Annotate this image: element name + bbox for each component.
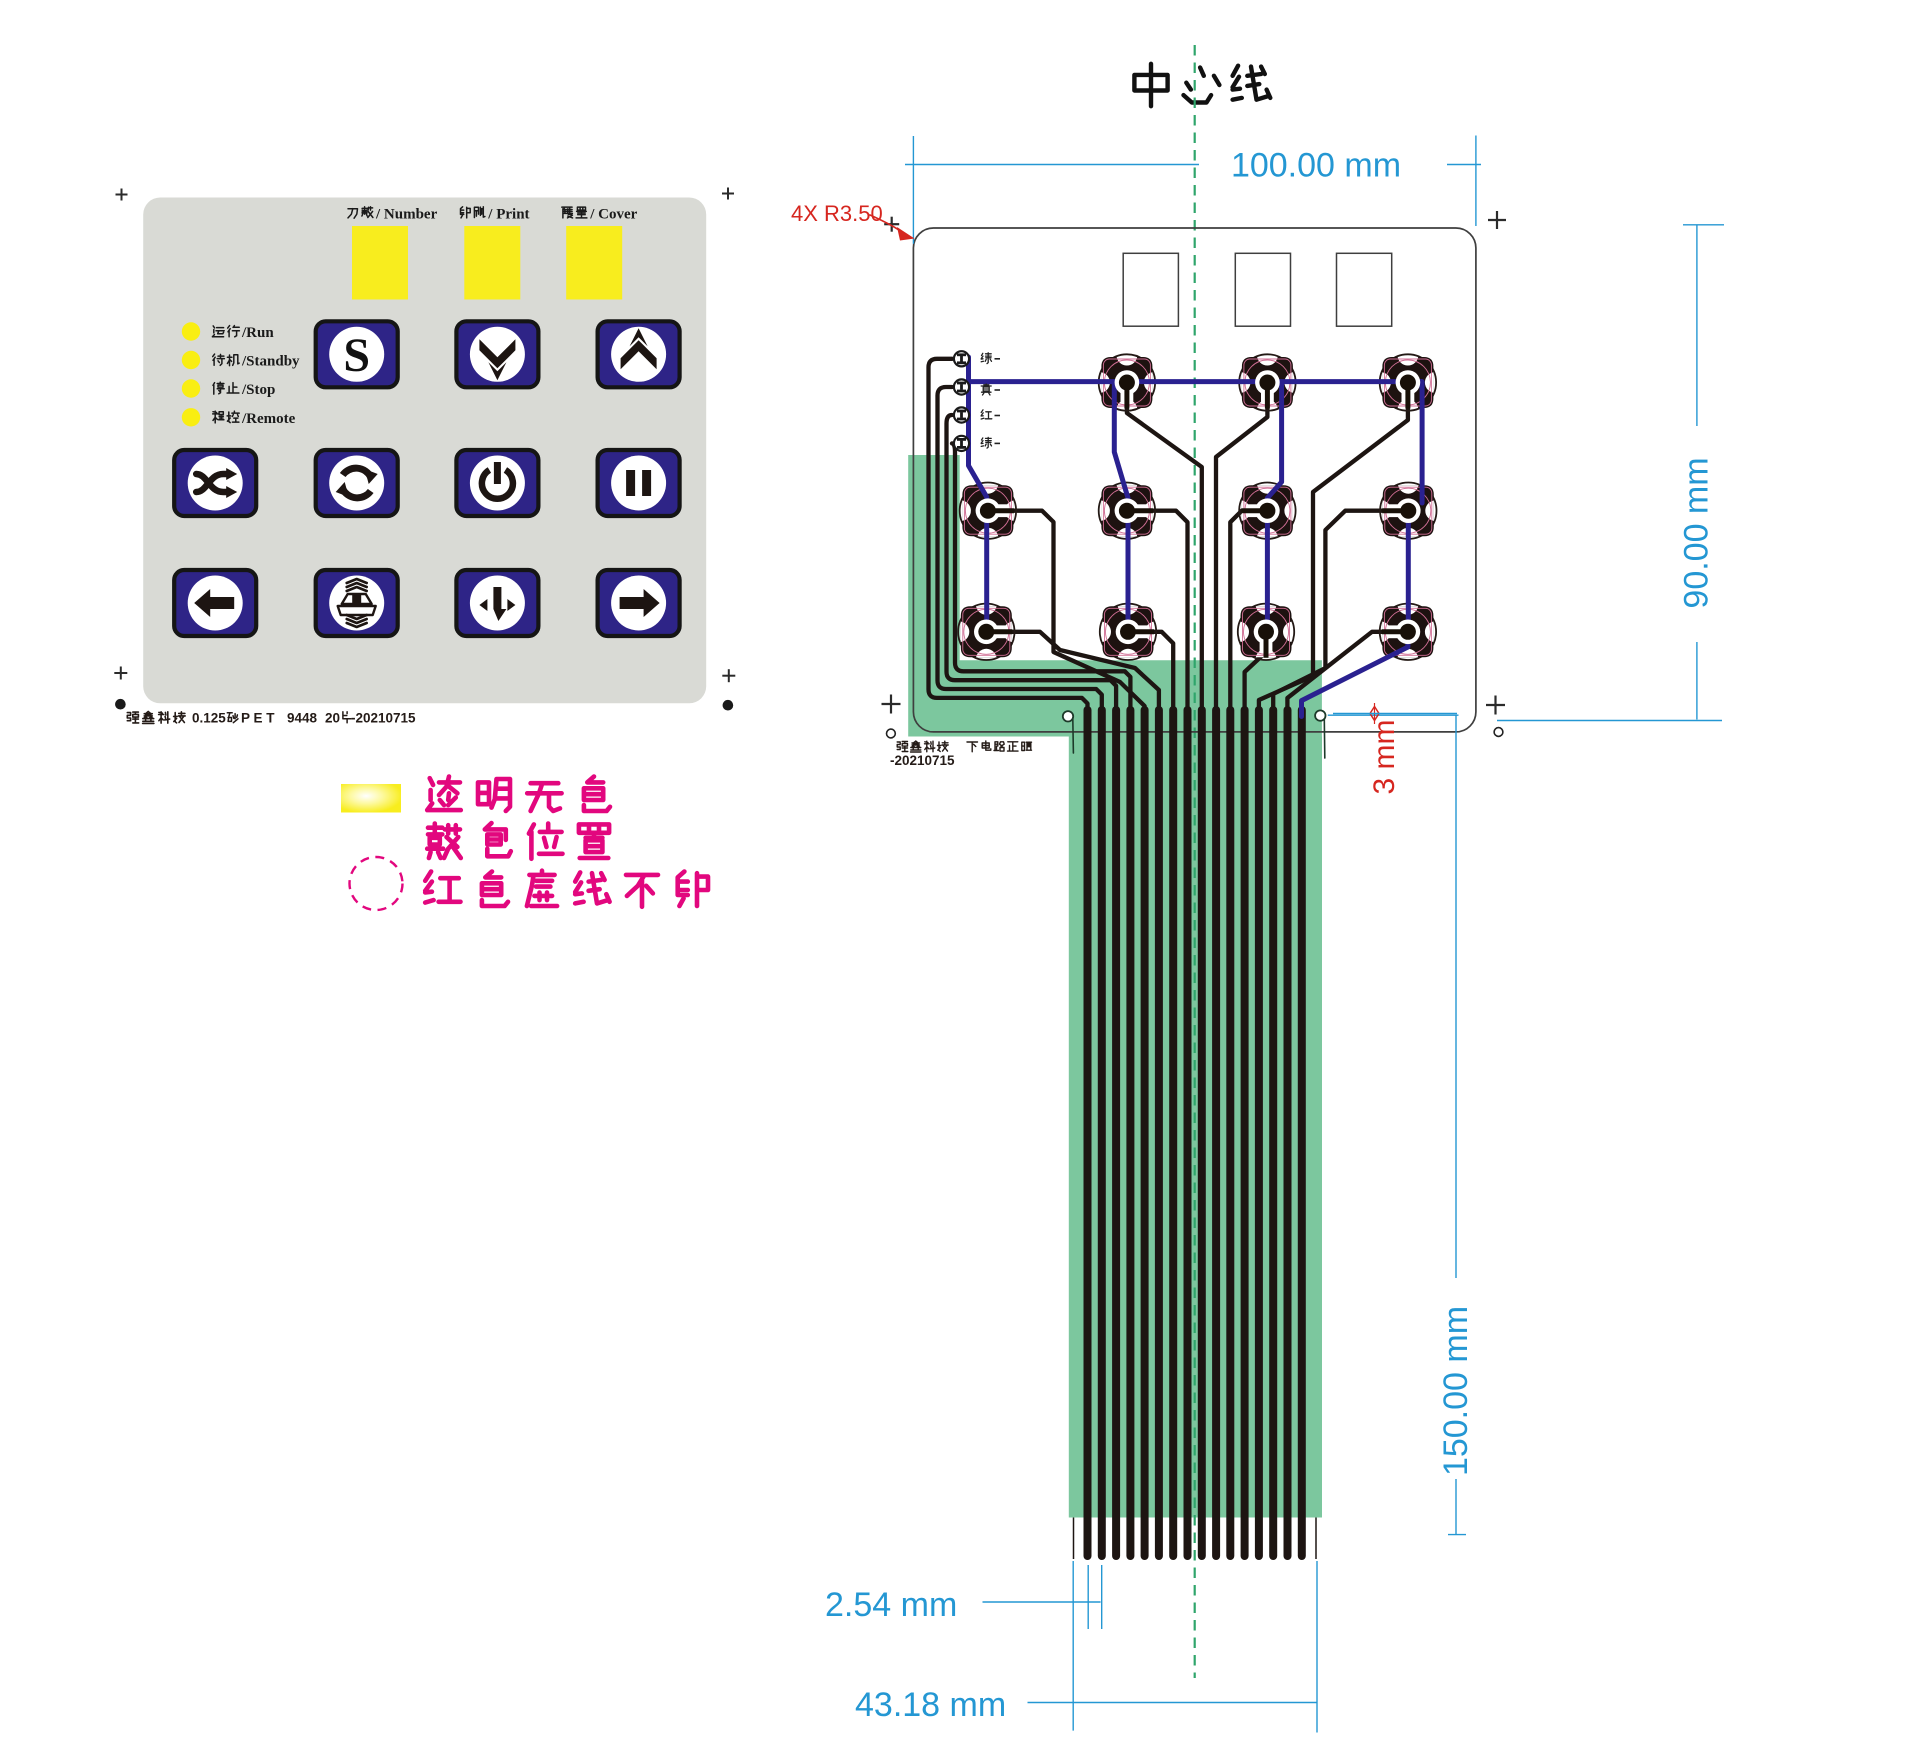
svg-text:P E T: P E T: [241, 711, 275, 726]
svg-text:/Standby: /Standby: [241, 354, 300, 370]
svg-text:3 mm: 3 mm: [1368, 720, 1401, 795]
svg-text:-20210715: -20210715: [890, 753, 955, 768]
svg-text:20: 20: [325, 711, 340, 726]
svg-text:/ Cover: / Cover: [589, 207, 637, 223]
svg-text:150.00 mm: 150.00 mm: [1437, 1306, 1475, 1476]
svg-text:/ Print: / Print: [487, 207, 529, 223]
svg-text:0.125: 0.125: [192, 711, 226, 726]
svg-text:9448: 9448: [287, 711, 318, 726]
svg-text:100.00 mm: 100.00 mm: [1231, 147, 1401, 185]
svg-text:/Stop: /Stop: [241, 382, 275, 398]
svg-text:/ Number: / Number: [375, 207, 438, 223]
svg-text:S: S: [343, 329, 370, 382]
svg-text:/Run: /Run: [241, 325, 274, 341]
svg-text:/Remote: /Remote: [241, 411, 296, 427]
svg-text:90.00 mm: 90.00 mm: [1678, 457, 1716, 608]
svg-text:-20210715: -20210715: [351, 711, 416, 726]
svg-text:2.54 mm: 2.54 mm: [825, 1586, 957, 1624]
svg-text:4X R3.50: 4X R3.50: [791, 201, 883, 226]
svg-text:43.18 mm: 43.18 mm: [855, 1686, 1006, 1724]
